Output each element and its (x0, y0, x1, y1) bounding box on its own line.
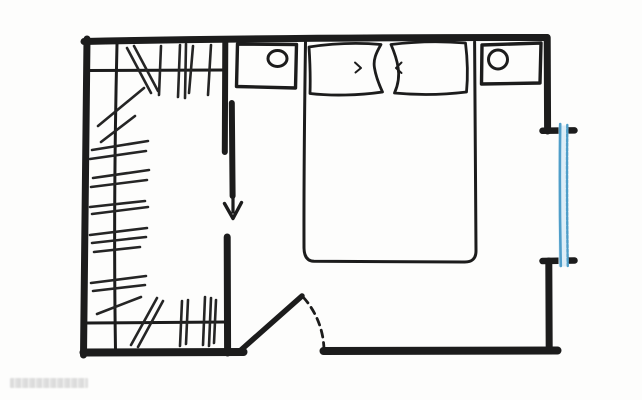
clothes-stroke (91, 276, 146, 283)
top-wall (84, 38, 547, 42)
clothes-stroke (90, 151, 146, 159)
walk-in-closet: Walk-in closet with hanging rods and clo… (88, 44, 228, 350)
bottom-wall-left (84, 352, 244, 353)
clothes-stroke (180, 301, 182, 346)
clothes-stroke (90, 228, 147, 235)
window-line-outer (560, 124, 561, 266)
clothes-hatches-left (90, 88, 149, 314)
clothes-stroke (92, 207, 148, 214)
clothes-stroke (94, 247, 140, 252)
hanging-rod-left: Closet hanging rod (left) (115, 44, 117, 350)
clothes-stroke (186, 300, 188, 344)
nightstand-left-top (237, 44, 297, 88)
pillow-right: Pillow (right) (391, 42, 467, 95)
nightstand-left: Nightstand with round lamp (left) (237, 44, 297, 88)
door-swing-arc (304, 298, 325, 351)
clothes-stroke (97, 297, 141, 314)
clothes-stroke (209, 298, 211, 346)
sliding-door-leaf: Sliding closet door leaf (232, 103, 233, 196)
window-line-inner (567, 125, 568, 268)
clothes-stroke (98, 88, 144, 126)
clothes-stroke (91, 180, 147, 187)
nightstand-right: Nightstand with round lamp (right) (482, 43, 542, 84)
double-bed: Double bed Pillow (left) Pillow (right) (304, 42, 476, 262)
bottom-wall-right (324, 351, 558, 352)
door-leaf (241, 296, 302, 350)
clothes-stroke (93, 285, 145, 291)
clothes-stroke (92, 237, 146, 243)
hanging-rod-bottom: Closet hanging rod (bottom) (88, 322, 228, 323)
clothes-stroke (90, 201, 145, 207)
hanging-rod-top: Closet hanging rod (top) (88, 70, 225, 71)
watermark (10, 378, 88, 388)
clothes-stroke (185, 44, 186, 98)
lamp-left (268, 51, 287, 67)
left-wall (84, 39, 88, 355)
window: Window on right wall (blue) (559, 124, 569, 268)
clothes-stroke (178, 45, 180, 97)
bed-outline (304, 42, 476, 262)
clothes-stroke (93, 170, 149, 178)
partition-wall-upper (225, 41, 226, 152)
pillow-left: Pillow (left) (309, 43, 383, 95)
pillow-left-crease (355, 63, 361, 73)
clothes-stroke (159, 46, 161, 95)
floor-plan-sketch: Bedroom floor plan sketch Room walls Win… (0, 0, 642, 400)
entry-door: Entry door leaf with dashed swing arc (241, 296, 324, 350)
clothes-stroke (208, 45, 211, 95)
lamp-right (489, 50, 508, 69)
arrow-down-icon: Sliding direction arrow (down) (225, 197, 242, 219)
clothes-stroke (203, 297, 205, 345)
clothes-stroke (214, 300, 216, 343)
